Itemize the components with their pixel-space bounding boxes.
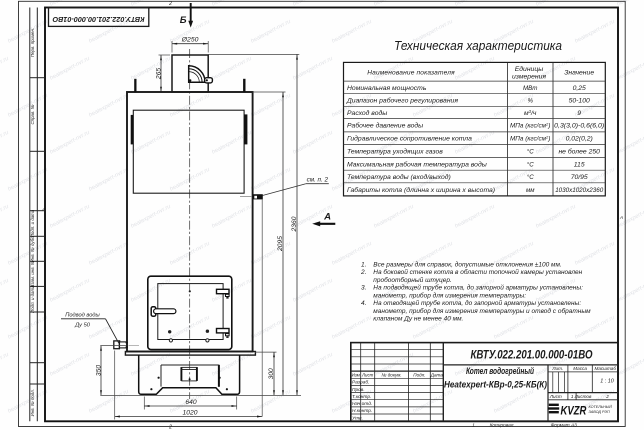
svg-text:1: 1	[571, 394, 574, 399]
svg-text:Ду 50: Ду 50	[74, 322, 91, 328]
svg-text:2095: 2095	[277, 236, 284, 252]
svg-text:На отводящей трубе котла, до з: На отводящей трубе котла, до запорной ар…	[373, 299, 581, 307]
svg-text:1: 1	[472, 422, 475, 427]
svg-text:Диапазон рабочего регулировани: Диапазон рабочего регулирования	[346, 97, 458, 105]
svg-text:2.: 2.	[360, 269, 367, 276]
svg-text:не более 250: не более 250	[558, 148, 600, 156]
svg-text:2: 2	[168, 1, 172, 7]
svg-text:КВТУ.022.201.00.000-01ВО: КВТУ.022.201.00.000-01ВО	[471, 350, 593, 362]
svg-text:115: 115	[574, 161, 585, 168]
svg-text:Наименование показателя: Наименование показателя	[367, 69, 455, 76]
svg-text:°С: °С	[527, 161, 534, 168]
svg-text:Б: Б	[180, 15, 187, 26]
svg-text:50-100: 50-100	[569, 98, 590, 105]
svg-text:Масштаб: Масштаб	[594, 366, 616, 371]
svg-text:300: 300	[268, 368, 275, 379]
svg-text:9: 9	[577, 110, 581, 117]
svg-text:Перв. примен.: Перв. примен.	[30, 28, 35, 57]
svg-text:МВт: МВт	[523, 85, 537, 92]
svg-text:Нач.отд.: Нач.отд.	[352, 401, 372, 407]
svg-text:Подп.: Подп.	[413, 372, 425, 377]
svg-text:ЗАВОД РЭП: ЗАВОД РЭП	[589, 410, 610, 414]
svg-text:350: 350	[95, 365, 102, 376]
svg-text:0,25: 0,25	[573, 85, 586, 92]
svg-text:Все размеры для справок, допус: Все размеры для справок, допустимые откл…	[373, 260, 562, 268]
svg-text:Копировал: Копировал	[490, 422, 514, 428]
svg-text:Подвод воды: Подвод воды	[65, 313, 100, 319]
svg-text:1020: 1020	[183, 410, 198, 417]
svg-text:Температура воды (вход/выход): Температура воды (вход/выход)	[347, 173, 451, 181]
svg-text:Пров.: Пров.	[352, 387, 365, 393]
svg-text:Рабочее давление воды: Рабочее давление воды	[347, 122, 423, 130]
svg-text:А: А	[323, 212, 331, 223]
svg-text:2360: 2360	[291, 216, 298, 232]
svg-text:Лит.: Лит.	[551, 366, 563, 371]
svg-text:Расход воды: Расход воды	[347, 109, 387, 117]
svg-text:1030х1020х2360: 1030х1020х2360	[555, 187, 603, 194]
svg-text:KVZR: KVZR	[561, 403, 587, 417]
svg-text:0,3(3,0)-0,6(6,0): 0,3(3,0)-0,6(6,0)	[554, 123, 604, 130]
svg-text:0,02(0,2): 0,02(0,2)	[566, 136, 593, 143]
svg-text:№ докум.: № докум.	[381, 372, 401, 377]
svg-text:Масса: Масса	[573, 366, 587, 371]
svg-text:Номинальная мощность: Номинальная мощность	[347, 85, 427, 92]
svg-text:Дата: Дата	[430, 372, 444, 377]
svg-text:Справ. №: Справ. №	[30, 104, 35, 124]
svg-text:Значение: Значение	[564, 69, 594, 76]
svg-text:Взам. инв. №: Взам. инв. №	[30, 260, 35, 287]
svg-text:На подводящей трубе котла, до: На подводящей трубе котла, до запорной а…	[373, 284, 583, 292]
svg-text:265: 265	[155, 68, 162, 80]
svg-text:Подп. и дата: Подп. и дата	[30, 285, 35, 313]
svg-text:клапаном Ду не менее 40 мм.: клапаном Ду не менее 40 мм.	[373, 316, 463, 323]
svg-text:МПа (кгс/см2): МПа (кгс/см2)	[510, 122, 550, 130]
svg-text:пробоотборный штуцер.: пробоотборный штуцер.	[373, 276, 452, 284]
svg-text:мм: мм	[526, 187, 535, 194]
svg-text:4.: 4.	[361, 300, 367, 307]
svg-text:Т.контр.: Т.контр.	[352, 394, 371, 400]
svg-text:°С: °С	[527, 149, 534, 156]
svg-text:Инв. № дубл.: Инв. № дубл.	[30, 235, 35, 262]
svg-text:м3/ч: м3/ч	[524, 109, 537, 117]
svg-text:Максимальная рабочая температу: Максимальная рабочая температура воды	[347, 160, 487, 168]
svg-text:1.: 1.	[361, 261, 367, 268]
svg-text:Инв. № подл.: Инв. № подл.	[30, 389, 35, 416]
svg-text:Котел водогрейный: Котел водогрейный	[466, 366, 534, 376]
svg-text:Лист: Лист	[549, 394, 562, 399]
svg-text:2: 2	[168, 425, 172, 430]
svg-text:КВТУ.022.201.00.000-01ВО: КВТУ.022.201.00.000-01ВО	[52, 15, 144, 24]
svg-text:Техническая характеристика: Техническая характеристика	[394, 38, 562, 53]
svg-text:Разраб.: Разраб.	[352, 380, 369, 386]
svg-text:Подп. и дата: Подп. и дата	[30, 209, 35, 237]
svg-text:Формат А3: Формат А3	[551, 422, 578, 428]
svg-text:Ø250: Ø250	[181, 37, 199, 44]
svg-text:манометр, прибор для измерения: манометр, прибор для измерения температу…	[373, 291, 526, 299]
svg-text:МПа (кгс/см2): МПа (кгс/см2)	[510, 135, 550, 143]
svg-text:1 : 10: 1 : 10	[600, 379, 614, 385]
svg-text:Изм: Изм	[352, 372, 360, 377]
svg-text:А: А	[41, 207, 45, 212]
svg-text:Гидравлическое сопротивление к: Гидравлическое сопротивление котла	[347, 135, 472, 143]
svg-text:°С: °С	[527, 174, 534, 181]
svg-text:Н.контр.: Н.контр.	[352, 408, 372, 414]
svg-text:Габариты котла (длинна х ширин: Габариты котла (длинна х ширина х высота…	[347, 186, 495, 194]
svg-text:Лист: Лист	[361, 372, 374, 377]
svg-text:3.: 3.	[361, 285, 367, 292]
svg-text:Утв.: Утв.	[352, 416, 363, 422]
svg-text:Температура уходящих газов: Температура уходящих газов	[347, 148, 443, 156]
svg-text:640: 640	[185, 399, 196, 406]
svg-text:КОТЕЛЬНЫЙ: КОТЕЛЬНЫЙ	[589, 405, 613, 409]
svg-text:см. п. 2: см. п. 2	[307, 176, 329, 183]
svg-text:Heatexpert-КВр-0,25-КБ(К): Heatexpert-КВр-0,25-КБ(К)	[444, 380, 547, 390]
svg-text:измерения: измерения	[512, 74, 546, 81]
svg-text:2: 2	[605, 394, 609, 399]
svg-text:Единицы: Единицы	[515, 65, 543, 73]
svg-text:манометр, прибор для измерения: манометр, прибор для измерения температу…	[373, 307, 591, 315]
svg-text:Листов: Листов	[574, 394, 592, 399]
svg-text:70/95: 70/95	[571, 174, 588, 181]
svg-text:А: А	[619, 215, 623, 220]
svg-text:На боковой стенке котла в обла: На боковой стенке котла в области топочн…	[373, 268, 582, 276]
svg-text:%: %	[527, 98, 533, 105]
